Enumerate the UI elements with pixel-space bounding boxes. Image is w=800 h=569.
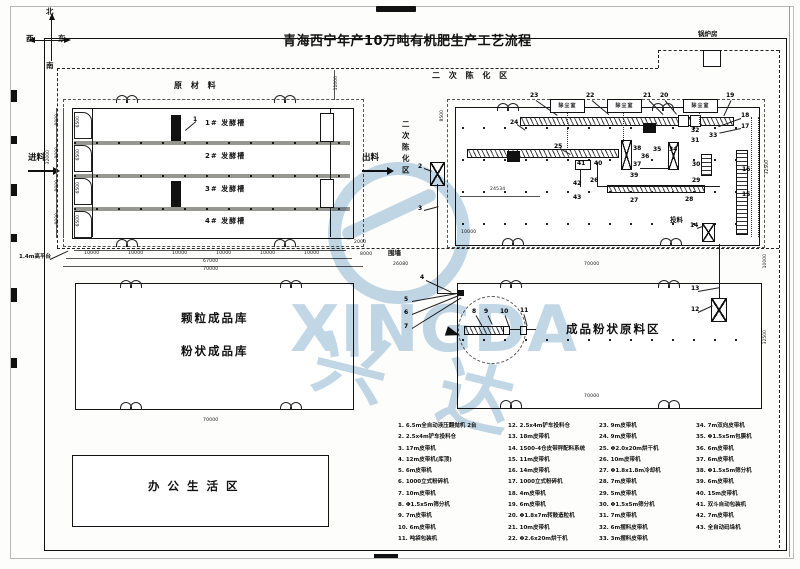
compass-west-label: 西 — [26, 35, 34, 43]
legend-item: 23. 9m皮带机 — [599, 421, 661, 432]
roof-vent — [658, 280, 680, 287]
fence-line-jog — [658, 50, 659, 68]
flow-line — [597, 186, 720, 187]
machine-box — [678, 115, 689, 127]
legend-item: 2. 2.5x4m铲车投料仓 — [398, 432, 477, 443]
legend-item: 29. 5m皮带机 — [599, 489, 661, 500]
dust-duct — [623, 112, 624, 142]
turner-dock — [320, 113, 334, 142]
top-stamp-mark — [376, 6, 416, 12]
legend-item: 21. 10m皮带机 — [508, 523, 585, 534]
roof-vent — [500, 280, 522, 287]
legend-item: 26. 10m皮带机 — [599, 455, 661, 466]
legend-item: 9. 7m皮带机 — [398, 511, 477, 522]
granulator-unit — [643, 123, 656, 133]
machine-box — [520, 326, 527, 335]
legend-column-3: 23. 9m皮带机24. 9m皮带机25. Φ2.0x20m烘干机26. 10m… — [599, 421, 661, 545]
dim-line — [74, 250, 346, 251]
legend-item: 1. 6.5m全自动液压翻抛机 2台 — [398, 421, 477, 432]
roof-vent — [280, 280, 302, 287]
dim-line — [63, 108, 64, 238]
binding-mark — [11, 358, 17, 368]
packing-line — [736, 150, 748, 235]
binding-mark — [11, 288, 17, 302]
legend-item: 38. Φ1.5x5m筛分机 — [696, 466, 752, 477]
dim-line — [56, 108, 57, 238]
roof-vent — [120, 402, 142, 409]
roof-vent — [658, 400, 680, 407]
tank-door — [74, 178, 92, 205]
flow-line — [580, 168, 581, 187]
roof-vent — [502, 238, 524, 245]
cad-drawing-page: 北 南 西 东 青海西宁年产10万吨有机肥生产工艺流程 除尘 — [0, 0, 800, 569]
legend-item: 3. 17m皮带机 — [398, 444, 477, 455]
roof-vent — [120, 280, 142, 287]
legend-item: 24. 9m皮带机 — [599, 432, 661, 443]
legend-item: 36. 6m皮带机 — [696, 444, 752, 455]
binding-mark — [11, 184, 17, 196]
legend-item: 5. 6m皮带机 — [398, 466, 477, 477]
legend-column-4: 34. 7m双向皮带机35. Φ1.5x5m包膜机36. 6m皮带机37. 6m… — [696, 421, 752, 534]
belt-13-line — [719, 244, 720, 299]
roof-vent — [116, 95, 138, 102]
roof-vent — [274, 95, 296, 102]
tank-separator — [74, 141, 350, 145]
legend-column-1: 1. 6.5m全自动液压翻抛机 2台2. 2.5x4m铲车投料仓3. 17m皮带… — [398, 421, 477, 545]
legend-column-2: 12. 2.5x4m铲车投料仓13. 18m皮带机14. 1500-4仓皮带秤配… — [508, 421, 585, 545]
flow-line — [597, 162, 598, 187]
dim-line — [460, 196, 540, 197]
right-edge-line — [789, 6, 790, 557]
roof-vent — [497, 103, 519, 110]
binding-mark — [11, 136, 17, 144]
tank-separator — [74, 207, 350, 211]
legend-item: 27. Φ1.8x1.8m冷却机 — [599, 466, 661, 477]
fence-line-middle — [57, 248, 779, 249]
discharge-arrow — [362, 170, 388, 172]
compost-turner — [171, 181, 181, 207]
legend-item: 30. Φ1.5x5m筛分机 — [599, 500, 661, 511]
legend-item: 22. Φ2.6x20m烘干机 — [508, 534, 585, 545]
belt-3-line — [437, 184, 438, 294]
finished-goods-warehouse — [75, 283, 354, 410]
boiler-room-box — [703, 50, 721, 67]
dust-room-box: 除尘室 — [550, 99, 585, 113]
fence-line-top — [57, 68, 658, 69]
legend-item: 15. 11m皮带机 — [508, 455, 585, 466]
legend-item: 4. 12m皮带机(库顶) — [398, 455, 477, 466]
tank-end-wall — [92, 109, 93, 237]
belt-conveyor — [520, 117, 734, 126]
compass-south-label: 南 — [46, 62, 54, 70]
tank-door — [74, 145, 92, 172]
legend-item: 43. 全自动码垛机 — [696, 523, 752, 534]
dim-line — [63, 266, 363, 267]
tank-separator — [74, 174, 350, 178]
dust-room-box: 除尘室 — [607, 99, 642, 113]
bottom-stamp-mark — [374, 554, 398, 558]
roof-vent — [280, 402, 302, 409]
belt-conveyor — [467, 149, 619, 158]
right-edge-line — [793, 6, 794, 557]
cooler-unit — [701, 154, 712, 176]
dust-room-box: 除尘室 — [683, 99, 718, 113]
elevator-line — [751, 117, 752, 237]
legend-item: 18. 4m皮带机 — [508, 489, 585, 500]
legend-item: 39. 6m皮带机 — [696, 477, 752, 488]
legend-item: 14. 1500-4仓皮带秤配料系统 — [508, 444, 585, 455]
legend-item: 6. 1000立式粉碎机 — [398, 477, 477, 488]
legend-item: 28. 7m皮带机 — [599, 477, 661, 488]
elevator-line — [758, 117, 759, 237]
compost-turner — [171, 115, 181, 141]
roof-vent — [660, 238, 682, 245]
screen-machine — [621, 140, 632, 170]
legend-item: 42. 7m皮带机 — [696, 511, 752, 522]
dim-line — [334, 70, 335, 100]
legend-item: 8. Φ1.5x5m筛分机 — [398, 500, 477, 511]
dust-duct — [699, 112, 700, 124]
legend-item: 33. 3m摆料皮带机 — [599, 534, 661, 545]
office-building — [72, 455, 329, 527]
legend-item: 35. Φ1.5x5m包膜机 — [696, 432, 752, 443]
loader-hopper — [430, 162, 445, 186]
legend-item: 32. 6m摆料皮带机 — [599, 523, 661, 534]
tank-door — [74, 211, 92, 238]
legend-item: 37. 6m皮带机 — [696, 455, 752, 466]
roof-vent — [500, 400, 522, 407]
legend-item: 41. 双斗自动包装机 — [696, 500, 752, 511]
screen-machine — [668, 142, 679, 170]
packer-unit — [575, 160, 591, 170]
turner-dock — [320, 179, 334, 208]
compass-north-label: 北 — [46, 8, 54, 16]
tank-door — [74, 112, 92, 139]
legend-item: 31. 7m皮带机 — [599, 511, 661, 522]
legend-item: 25. Φ2.0x20m烘干机 — [599, 444, 661, 455]
binding-mark — [11, 90, 17, 102]
fence-line-boiler — [719, 50, 779, 51]
fence-line-right — [779, 50, 780, 548]
belt-conveyor — [464, 326, 508, 335]
legend-item: 12. 2.5x4m铲车投料仓 — [508, 421, 585, 432]
compass-east-label: 东 — [58, 35, 66, 43]
legend-item: 20. Φ1.8x7m转鼓造粒机 — [508, 511, 585, 522]
legend-item: 17. 1000立式粉碎机 — [508, 477, 585, 488]
legend-item: 7. 10m皮带机 — [398, 489, 477, 500]
roof-vent — [116, 239, 138, 246]
legend-item: 40. 15m皮带机 — [696, 489, 752, 500]
legend-item: 10. 6m皮带机 — [398, 523, 477, 534]
column-grid-row — [462, 339, 756, 341]
crusher-unit — [507, 151, 520, 162]
dim-line — [66, 258, 352, 259]
feed-in-arrow — [28, 170, 54, 172]
binding-mark — [11, 234, 17, 242]
dust-duct — [567, 112, 568, 148]
column-grid-row — [462, 127, 752, 129]
legend-item: 19. 6m皮带机 — [508, 500, 585, 511]
flow-line — [640, 168, 670, 169]
roof-vent — [274, 239, 296, 246]
legend-item: 34. 7m双向皮带机 — [696, 421, 752, 432]
legend-item: 11. 吨袋包装机 — [398, 534, 477, 545]
fence-line-boiler — [658, 50, 703, 51]
loader-hopper — [711, 298, 727, 322]
fence-line-left — [57, 68, 58, 248]
legend-item: 16. 14m皮带机 — [508, 466, 585, 477]
drawing-title: 青海西宁年产10万吨有机肥生产工艺流程 — [283, 30, 532, 49]
legend-item: 13. 18m皮带机 — [508, 432, 585, 443]
